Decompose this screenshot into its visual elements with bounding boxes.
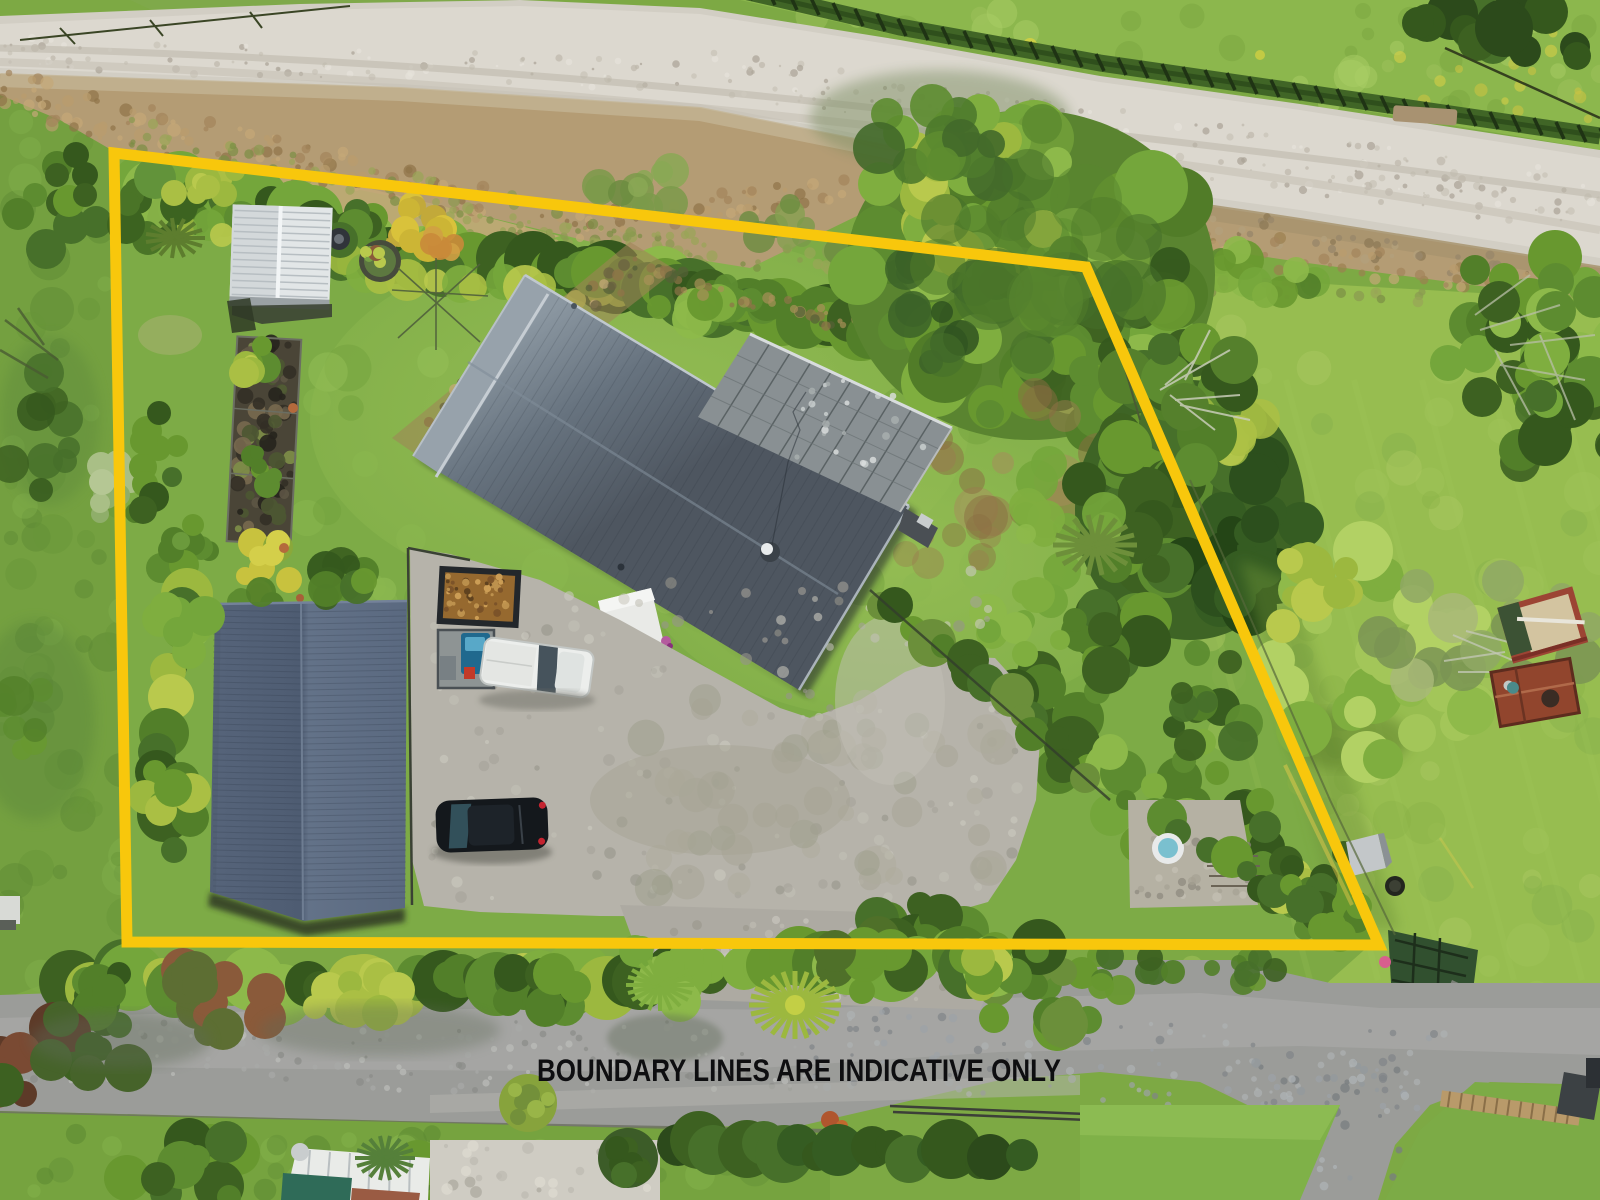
svg-text:BOUNDARY LINES ARE INDICATIVE: BOUNDARY LINES ARE INDICATIVE ONLY — [537, 1052, 1061, 1088]
